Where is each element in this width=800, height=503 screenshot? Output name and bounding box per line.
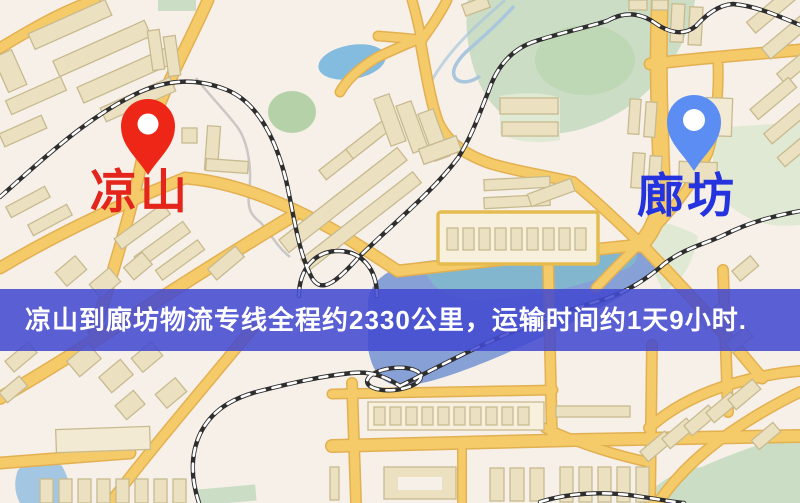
- route-info-banner: 凉山到廊坊物流专线全程约2330公里，运输时间约1天9小时.: [0, 289, 800, 351]
- map-canvas[interactable]: [0, 0, 800, 503]
- map-view: 凉山 廊坊 凉山到廊坊物流专线全程约2330公里，运输时间约1天9小时.: [0, 0, 800, 503]
- market-complex: [438, 212, 598, 264]
- route-info-text: 凉山到廊坊物流专线全程约2330公里，运输时间约1天9小时.: [25, 305, 747, 335]
- destination-label: 廊坊: [637, 174, 737, 221]
- origin-label: 凉山: [90, 170, 190, 217]
